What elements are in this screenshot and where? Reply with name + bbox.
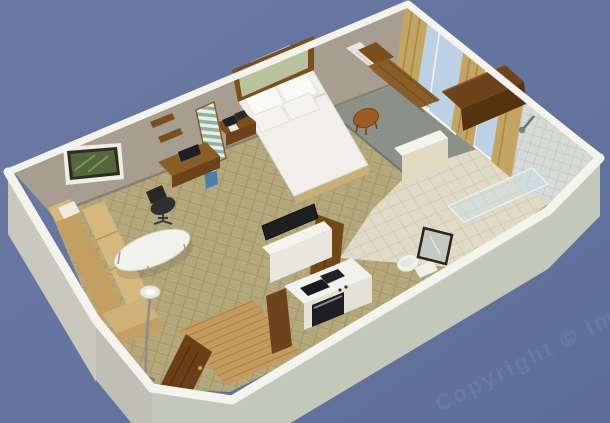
floorplan-render: Copyright © Imagery Group xyxy=(0,0,610,423)
floorplan-svg: Copyright © Imagery Group xyxy=(0,0,610,423)
shower-head xyxy=(519,127,525,133)
lamp-bulb xyxy=(145,289,155,295)
wall-art-niche xyxy=(63,143,124,185)
door-knob xyxy=(198,366,202,370)
knob xyxy=(344,285,347,288)
knob xyxy=(338,288,341,291)
